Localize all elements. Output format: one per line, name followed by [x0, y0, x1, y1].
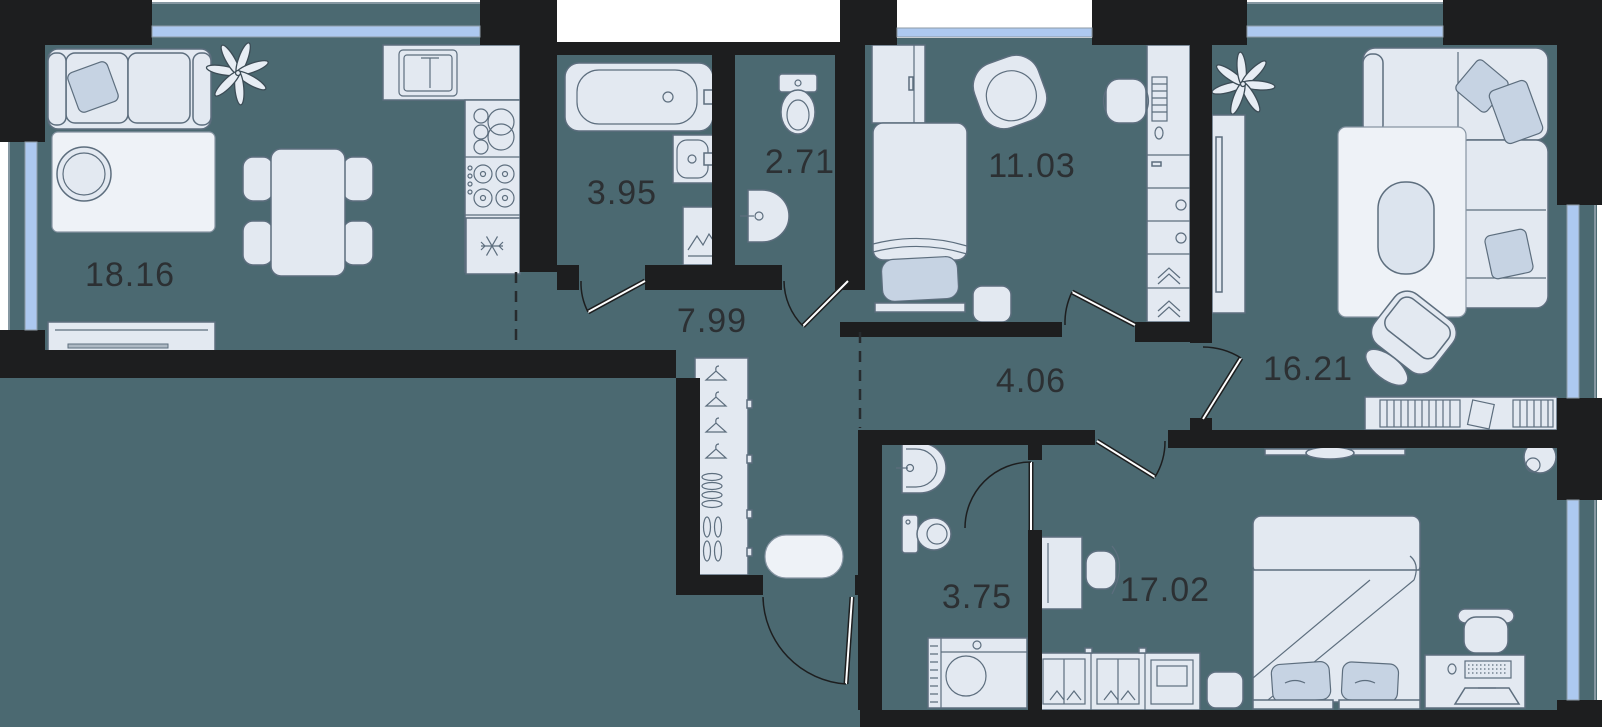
desk-chair-2: [1458, 609, 1514, 653]
window: [1567, 500, 1579, 700]
corner-sink: [740, 190, 789, 242]
fridge: [466, 218, 520, 274]
window: [1567, 205, 1579, 398]
room-label-hallway: 7.99: [677, 304, 747, 338]
floor-plan-drawing: [0, 0, 1602, 727]
window: [152, 26, 480, 37]
bed-single: [873, 123, 967, 312]
tv-cabinet: [1212, 115, 1245, 313]
computer-desk: [1425, 655, 1525, 708]
toilet: [779, 74, 817, 134]
room-label-bedroom: 11.03: [988, 149, 1076, 183]
floor-plan: 18.16 3.95 2.71 11.03 16.21 7.99 4.06 3.…: [0, 0, 1602, 727]
desk-chair: [1104, 79, 1149, 123]
room-label-living-room: 16.21: [1263, 352, 1353, 386]
bathroom-sink: [673, 135, 717, 183]
wardrobe: [695, 358, 752, 575]
room-label-living-dining: 18.16: [85, 258, 175, 292]
room-label-wc: 2.71: [765, 145, 835, 179]
media-shelf: [1365, 397, 1557, 430]
washing-machine: [928, 638, 1027, 708]
toilet-2: [902, 515, 951, 553]
sink-2: [896, 443, 946, 493]
window: [1247, 26, 1443, 37]
room-label-bedroom-master: 17.02: [1120, 573, 1210, 607]
room-label-shower-room: 3.75: [942, 580, 1012, 614]
nightstand-2: [1207, 672, 1243, 708]
dresser: [1037, 648, 1200, 710]
tv-stand: [48, 322, 215, 353]
window: [897, 28, 1092, 37]
bathtub: [565, 63, 716, 131]
coffee-table: [57, 147, 111, 201]
bed-double: [1253, 516, 1420, 709]
coffee-table-2: [1378, 182, 1434, 274]
room-label-corridor: 4.06: [996, 364, 1066, 398]
pouf: [765, 535, 843, 578]
closet: [872, 45, 925, 123]
window: [25, 142, 37, 330]
monitor-icon: [1455, 688, 1519, 704]
sofa: [48, 49, 211, 129]
desk-wall-unit: [1147, 45, 1190, 322]
nightstand: [973, 286, 1011, 322]
room-label-bathroom: 3.95: [587, 176, 657, 210]
